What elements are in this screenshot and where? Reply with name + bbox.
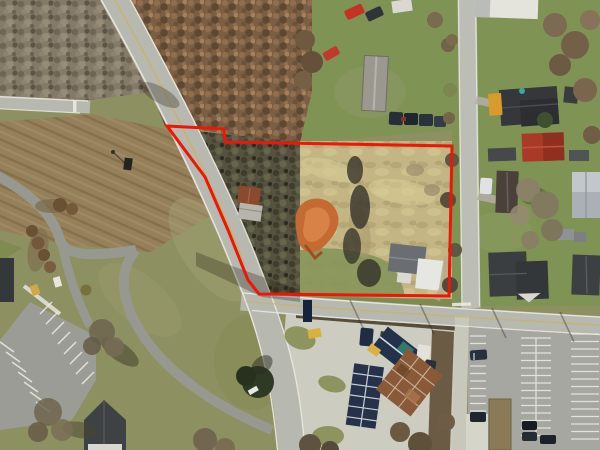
white-barn-roof xyxy=(474,0,539,19)
parked-car xyxy=(470,349,488,360)
south-drive xyxy=(459,316,462,450)
business-sign xyxy=(303,300,312,322)
parked-car xyxy=(522,432,537,441)
mobile-home xyxy=(362,55,389,111)
north-south-road xyxy=(467,0,471,308)
aerial-photo xyxy=(0,0,600,450)
white-car xyxy=(479,178,492,195)
side-street xyxy=(0,102,90,107)
aerial-photo-canvas xyxy=(0,0,600,450)
parked-car xyxy=(470,412,486,422)
house-g xyxy=(571,255,600,296)
parked-car xyxy=(522,421,537,430)
campus-building-roof xyxy=(0,258,14,302)
house-red-roof xyxy=(522,132,565,161)
median-island xyxy=(489,399,511,450)
house-e xyxy=(572,172,600,218)
brush-strip-gas xyxy=(428,330,454,450)
parked-car xyxy=(540,435,556,444)
